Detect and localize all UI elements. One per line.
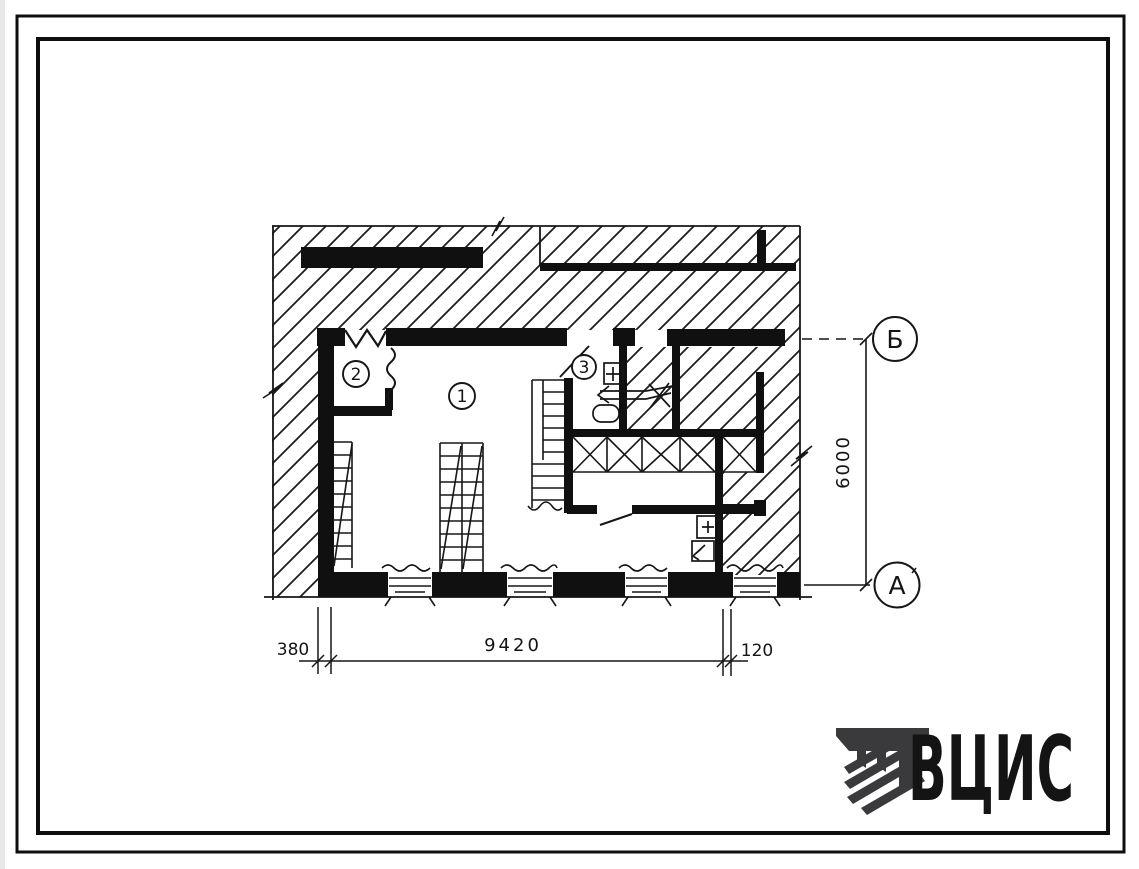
dim-380: 380 [277,640,309,660]
left-wall [318,328,334,575]
bottom-wall-seg4 [668,572,733,597]
top-wall-seg2 [386,328,567,346]
scan-edge [0,0,5,869]
axis-a-label: А [888,571,905,600]
wall-top-left-bar [301,247,483,268]
top-wall-pier [613,328,635,346]
corridor-bottom-wall-c [723,504,756,514]
corridor-wall [564,378,573,513]
dim-9420: 9420 [484,635,542,656]
hatch-left-strip [272,330,318,597]
bottom-wall-seg5 [777,572,800,597]
bottom-wall-seg2 [432,572,507,597]
closet-top-bar [567,429,764,437]
hatch-lower-right [722,472,763,575]
room-2-number: 2 [351,365,362,385]
floor-plan-drawing: 1 2 3 380 9420 120 Б А 6000 [0,0,1139,869]
closet-right-wall [756,372,764,473]
logo-text: ВЦИС [908,717,1074,822]
dim-120: 120 [741,641,773,661]
niche-bottom-line [540,263,796,271]
corridor-bottom-wall-b [632,505,715,514]
dim-6000: 6000 [833,435,854,489]
hatch-right-strip [763,330,800,575]
niche-right-post [757,230,766,268]
top-wall-seg3 [667,329,785,346]
bottom-wall-seg3 [553,572,625,597]
room2-bottom-wall [334,406,392,416]
wall-end-blob [754,500,766,516]
hatch-top-band [272,226,800,330]
bath-wall-2 [672,346,680,432]
axis-b-label: Б [886,325,903,354]
corridor-bottom-wall-a [567,505,597,514]
hatch-neighbour-room [680,347,763,430]
blueprint-page: 1 2 3 380 9420 120 Б А 6000 [0,0,1139,869]
logo: ВЦИС [836,717,1074,822]
bath-wall-1 [619,346,627,432]
room-1-number: 1 [457,387,468,407]
room-3-number: 3 [579,358,590,378]
bottom-wall-seg1 [318,572,388,597]
partition-wall [715,430,723,575]
